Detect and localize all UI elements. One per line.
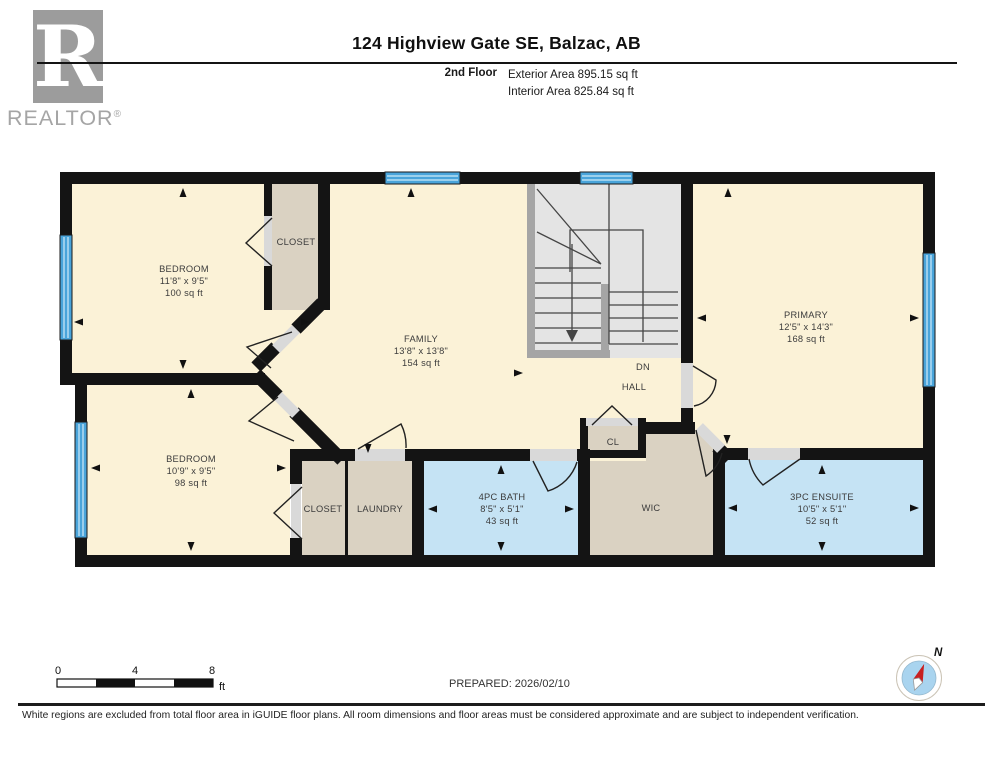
family-area: 154 sq ft bbox=[402, 358, 440, 368]
registered-mark: ® bbox=[114, 109, 122, 120]
ensuite-dims: 10'5" x 5'1" bbox=[798, 504, 847, 514]
realtor-logo: R bbox=[33, 10, 103, 103]
bedroom2-area: 98 sq ft bbox=[175, 478, 208, 488]
window-right-primary bbox=[923, 253, 935, 387]
family-dims: 13'8" x 13'8" bbox=[394, 346, 448, 356]
footer-divider-line bbox=[18, 703, 985, 706]
stairs-dn-label: DN bbox=[636, 362, 650, 372]
scale-tick-4: 4 bbox=[132, 665, 138, 677]
bedroom1-label: BEDROOM bbox=[159, 264, 209, 274]
realtor-wordmark: REALTOR® bbox=[7, 106, 122, 131]
cl-label: CL bbox=[607, 437, 619, 447]
floor-plan-drawing: BEDROOM 11'8" x 9'5" 100 sq ft CLOSET FA… bbox=[0, 0, 993, 768]
realtor-wordmark-text: REALTOR bbox=[7, 106, 114, 130]
closet1-label: CLOSET bbox=[277, 237, 316, 247]
family-label: FAMILY bbox=[404, 334, 438, 344]
compass-icon: N bbox=[897, 647, 944, 701]
prepared-date: PREPARED: 2026/02/10 bbox=[449, 678, 570, 690]
floor-plan-page: { "header": { "logo_letter": "R", "logo_… bbox=[0, 0, 993, 768]
ensuite-label: 3PC ENSUITE bbox=[790, 492, 854, 502]
bedroom2-dims: 10'9" x 9'5" bbox=[167, 466, 216, 476]
window-left-lower bbox=[75, 422, 87, 538]
hall-label: HALL bbox=[622, 382, 646, 392]
stairwell bbox=[527, 184, 682, 358]
bath-area: 43 sq ft bbox=[486, 516, 519, 526]
bedroom1-area: 100 sq ft bbox=[165, 288, 203, 298]
bath-dims: 8'5" x 5'1" bbox=[480, 504, 523, 514]
primary-area: 168 sq ft bbox=[787, 334, 825, 344]
bedroom2-label: BEDROOM bbox=[166, 454, 216, 464]
window-top-stairs bbox=[580, 172, 633, 184]
wic-label: WIC bbox=[642, 503, 661, 513]
laundry-label: LAUNDRY bbox=[357, 504, 403, 514]
ensuite-area: 52 sq ft bbox=[806, 516, 839, 526]
disclaimer-text: White regions are excluded from total fl… bbox=[22, 710, 982, 721]
scale-tick-0: 0 bbox=[55, 665, 61, 677]
closet2-label: CLOSET bbox=[304, 504, 343, 514]
scale-unit: ft bbox=[219, 681, 225, 693]
window-top-family bbox=[385, 172, 460, 184]
window-left-upper bbox=[60, 235, 72, 340]
realtor-logo-letter: R bbox=[33, 15, 103, 99]
scale-bar: 0 4 8 ft bbox=[55, 665, 225, 693]
scale-tick-8: 8 bbox=[209, 665, 215, 677]
bath-label: 4PC BATH bbox=[479, 492, 526, 502]
header-divider-line bbox=[37, 62, 957, 64]
bedroom1-dims: 11'8" x 9'5" bbox=[160, 276, 208, 286]
primary-label: PRIMARY bbox=[784, 310, 828, 320]
primary-dims: 12'5" x 14'3" bbox=[779, 322, 833, 332]
closet1-fill bbox=[272, 184, 318, 310]
compass-north-label: N bbox=[934, 647, 943, 659]
